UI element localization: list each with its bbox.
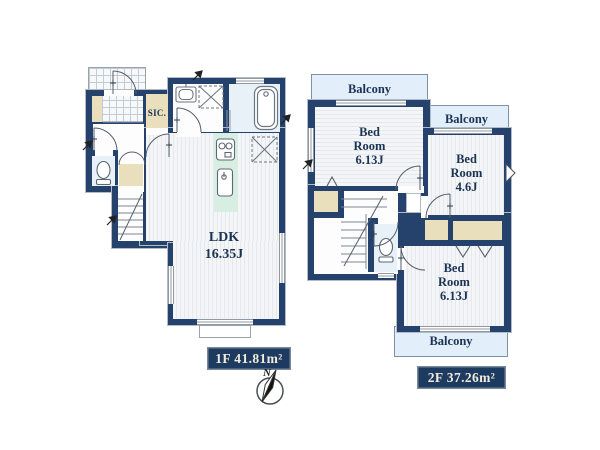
window-ldk-left [168,266,174,304]
window-ldk-right [279,233,285,283]
bed1-l3: 6.13J [322,153,417,167]
wall-closet-left-side [338,188,344,214]
sic-closet: SIC. [146,94,168,132]
window-toilet-2f [378,273,394,278]
balcony-top-label: Balcony [348,82,391,97]
window-bed1-left [308,128,314,172]
terrace-step [199,325,251,338]
hall-closet-1f [119,164,143,186]
bed2-l3: 4.6J [424,180,509,194]
balcony-bottom-label: Balcony [429,334,472,349]
entry-shoe-area [92,96,102,122]
bedroom-bottom-right-label: Bed Room 6.13J [404,261,504,303]
stairs-1f [118,192,143,241]
bed1-l1: Bed [322,125,417,139]
floor2-area-label: 2F 37.26m² [417,366,506,389]
toilet-room-2f [374,224,398,272]
bed2-l1: Bed [424,152,509,166]
bed3-l1: Bed [404,261,504,275]
compass: N [248,364,292,412]
doorway-hall-ldk [146,128,168,135]
sic-label: SIC. [146,94,168,132]
bed3-l2: Room [404,275,504,289]
closet-2f-left [314,191,340,212]
floor1-area-label: 1F 41.81m² [207,347,291,370]
toilet-room-1f [92,156,115,186]
balcony-right-label: Balcony [445,112,488,127]
window-bed3-bottom [420,326,490,332]
bathroom-1f [229,84,280,132]
bed2-l2: Room [424,166,509,180]
bedroom-right-label: Bed Room 4.6J [424,152,509,194]
kitchen-counter [214,133,238,212]
washroom-1f [173,84,223,132]
doorway-bed2 [421,196,428,218]
closet-2f-right [453,221,502,240]
ldk-size: 16.35J [180,247,268,264]
doorway-washroom [177,131,201,137]
hall-1f [93,124,144,150]
window-bed2-top [434,128,492,134]
bed1-l2: Room [322,139,417,153]
bedroom-top-left-label: Bed Room 6.13J [322,125,417,167]
ldk-label: LDK 16.35J [180,230,268,264]
floor-plan-page: SIC. LDK 16.35J Balcony Balcony Balcony [0,0,600,450]
doorway-toilet-1f [95,150,113,156]
doorway-bed1 [398,186,424,193]
doorway-entry [104,90,134,96]
genkan-tile-floor [102,96,143,122]
wall-closet-left-bottom [310,212,344,218]
bed3-l3: 6.13J [404,289,504,303]
window-bed1-top [336,100,406,106]
window-bath [236,78,264,84]
ldk-name: LDK [180,230,268,247]
closet-2f-mid [425,220,448,240]
ldk-room [146,133,279,241]
